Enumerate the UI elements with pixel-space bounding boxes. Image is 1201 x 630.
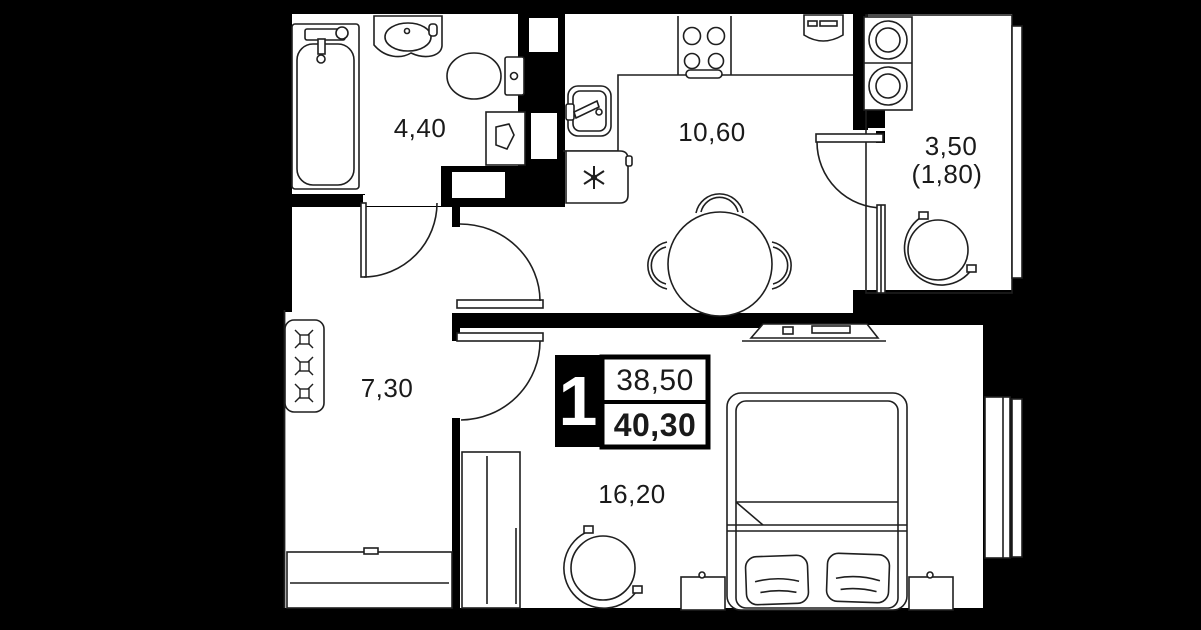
bathroom-area-label: 4,40 xyxy=(394,113,447,143)
washbasin-side-tab xyxy=(429,24,437,36)
wall-hall-living xyxy=(452,418,460,608)
washbasin-tap xyxy=(405,29,410,34)
balcony-glazing xyxy=(1012,26,1022,278)
tv-console xyxy=(742,324,886,341)
bedroom-window xyxy=(985,397,1022,558)
pillow-left xyxy=(745,555,809,605)
pillow-right xyxy=(826,553,890,603)
nightstand-right xyxy=(909,572,953,610)
balcony-window xyxy=(877,205,885,293)
range-hood xyxy=(804,15,843,41)
appliance-cabinet xyxy=(566,151,632,203)
hall-wardrobe xyxy=(285,320,324,412)
balcony-reduced-area-label: (1,80) xyxy=(912,159,983,189)
kitchen-faucet-base xyxy=(596,109,602,115)
washer-dryer-stack xyxy=(864,17,912,110)
bathtub xyxy=(292,24,359,189)
bathtub-faucet-knob xyxy=(336,27,348,39)
floor-plan-page: 1 38,50 40,30 4,40 10,60 3,50 (1,80) 7,3… xyxy=(0,0,1201,630)
floor-plan: 1 38,50 40,30 4,40 10,60 3,50 (1,80) 7,3… xyxy=(0,0,1201,630)
unit-living-area: 38,50 xyxy=(616,364,694,397)
shaft-box-1 xyxy=(529,18,558,52)
bed xyxy=(727,393,907,610)
hallway-area-label: 7,30 xyxy=(361,373,414,403)
washbasin xyxy=(374,16,442,57)
shaft-box-2 xyxy=(531,113,557,159)
wall-right-upper xyxy=(983,290,1025,398)
balcony-area-label: 3,50 xyxy=(925,131,978,161)
duct-inset xyxy=(452,172,505,198)
wall-left-upper xyxy=(280,14,292,312)
shoe-cabinet xyxy=(287,548,452,608)
wall-stub-entry-north xyxy=(452,205,460,227)
unit-rooms-count: 1 xyxy=(559,362,598,440)
unit-badge: 1 38,50 40,30 xyxy=(555,355,708,447)
wardrobe-living xyxy=(462,452,520,608)
kitchen-sink-tab xyxy=(566,104,574,120)
water-heater-cabinet xyxy=(486,112,525,165)
bathtub-drain xyxy=(317,55,325,63)
nightstand-left xyxy=(681,572,725,610)
bathroom-door-opening xyxy=(363,195,441,206)
wall-balcony-door-head xyxy=(853,108,885,128)
unit-total-area: 40,30 xyxy=(614,407,697,443)
kitchen-area-label: 10,60 xyxy=(678,117,746,147)
dining-table xyxy=(668,212,772,316)
toilet-tank-button xyxy=(511,73,518,80)
bathtub-faucet-stem xyxy=(318,39,325,54)
kitchen-sink xyxy=(566,86,611,136)
stove-handle xyxy=(686,70,722,78)
living-room-area-label: 16,20 xyxy=(598,479,666,509)
wall-bathroom-south xyxy=(280,194,365,207)
toilet xyxy=(447,53,524,99)
